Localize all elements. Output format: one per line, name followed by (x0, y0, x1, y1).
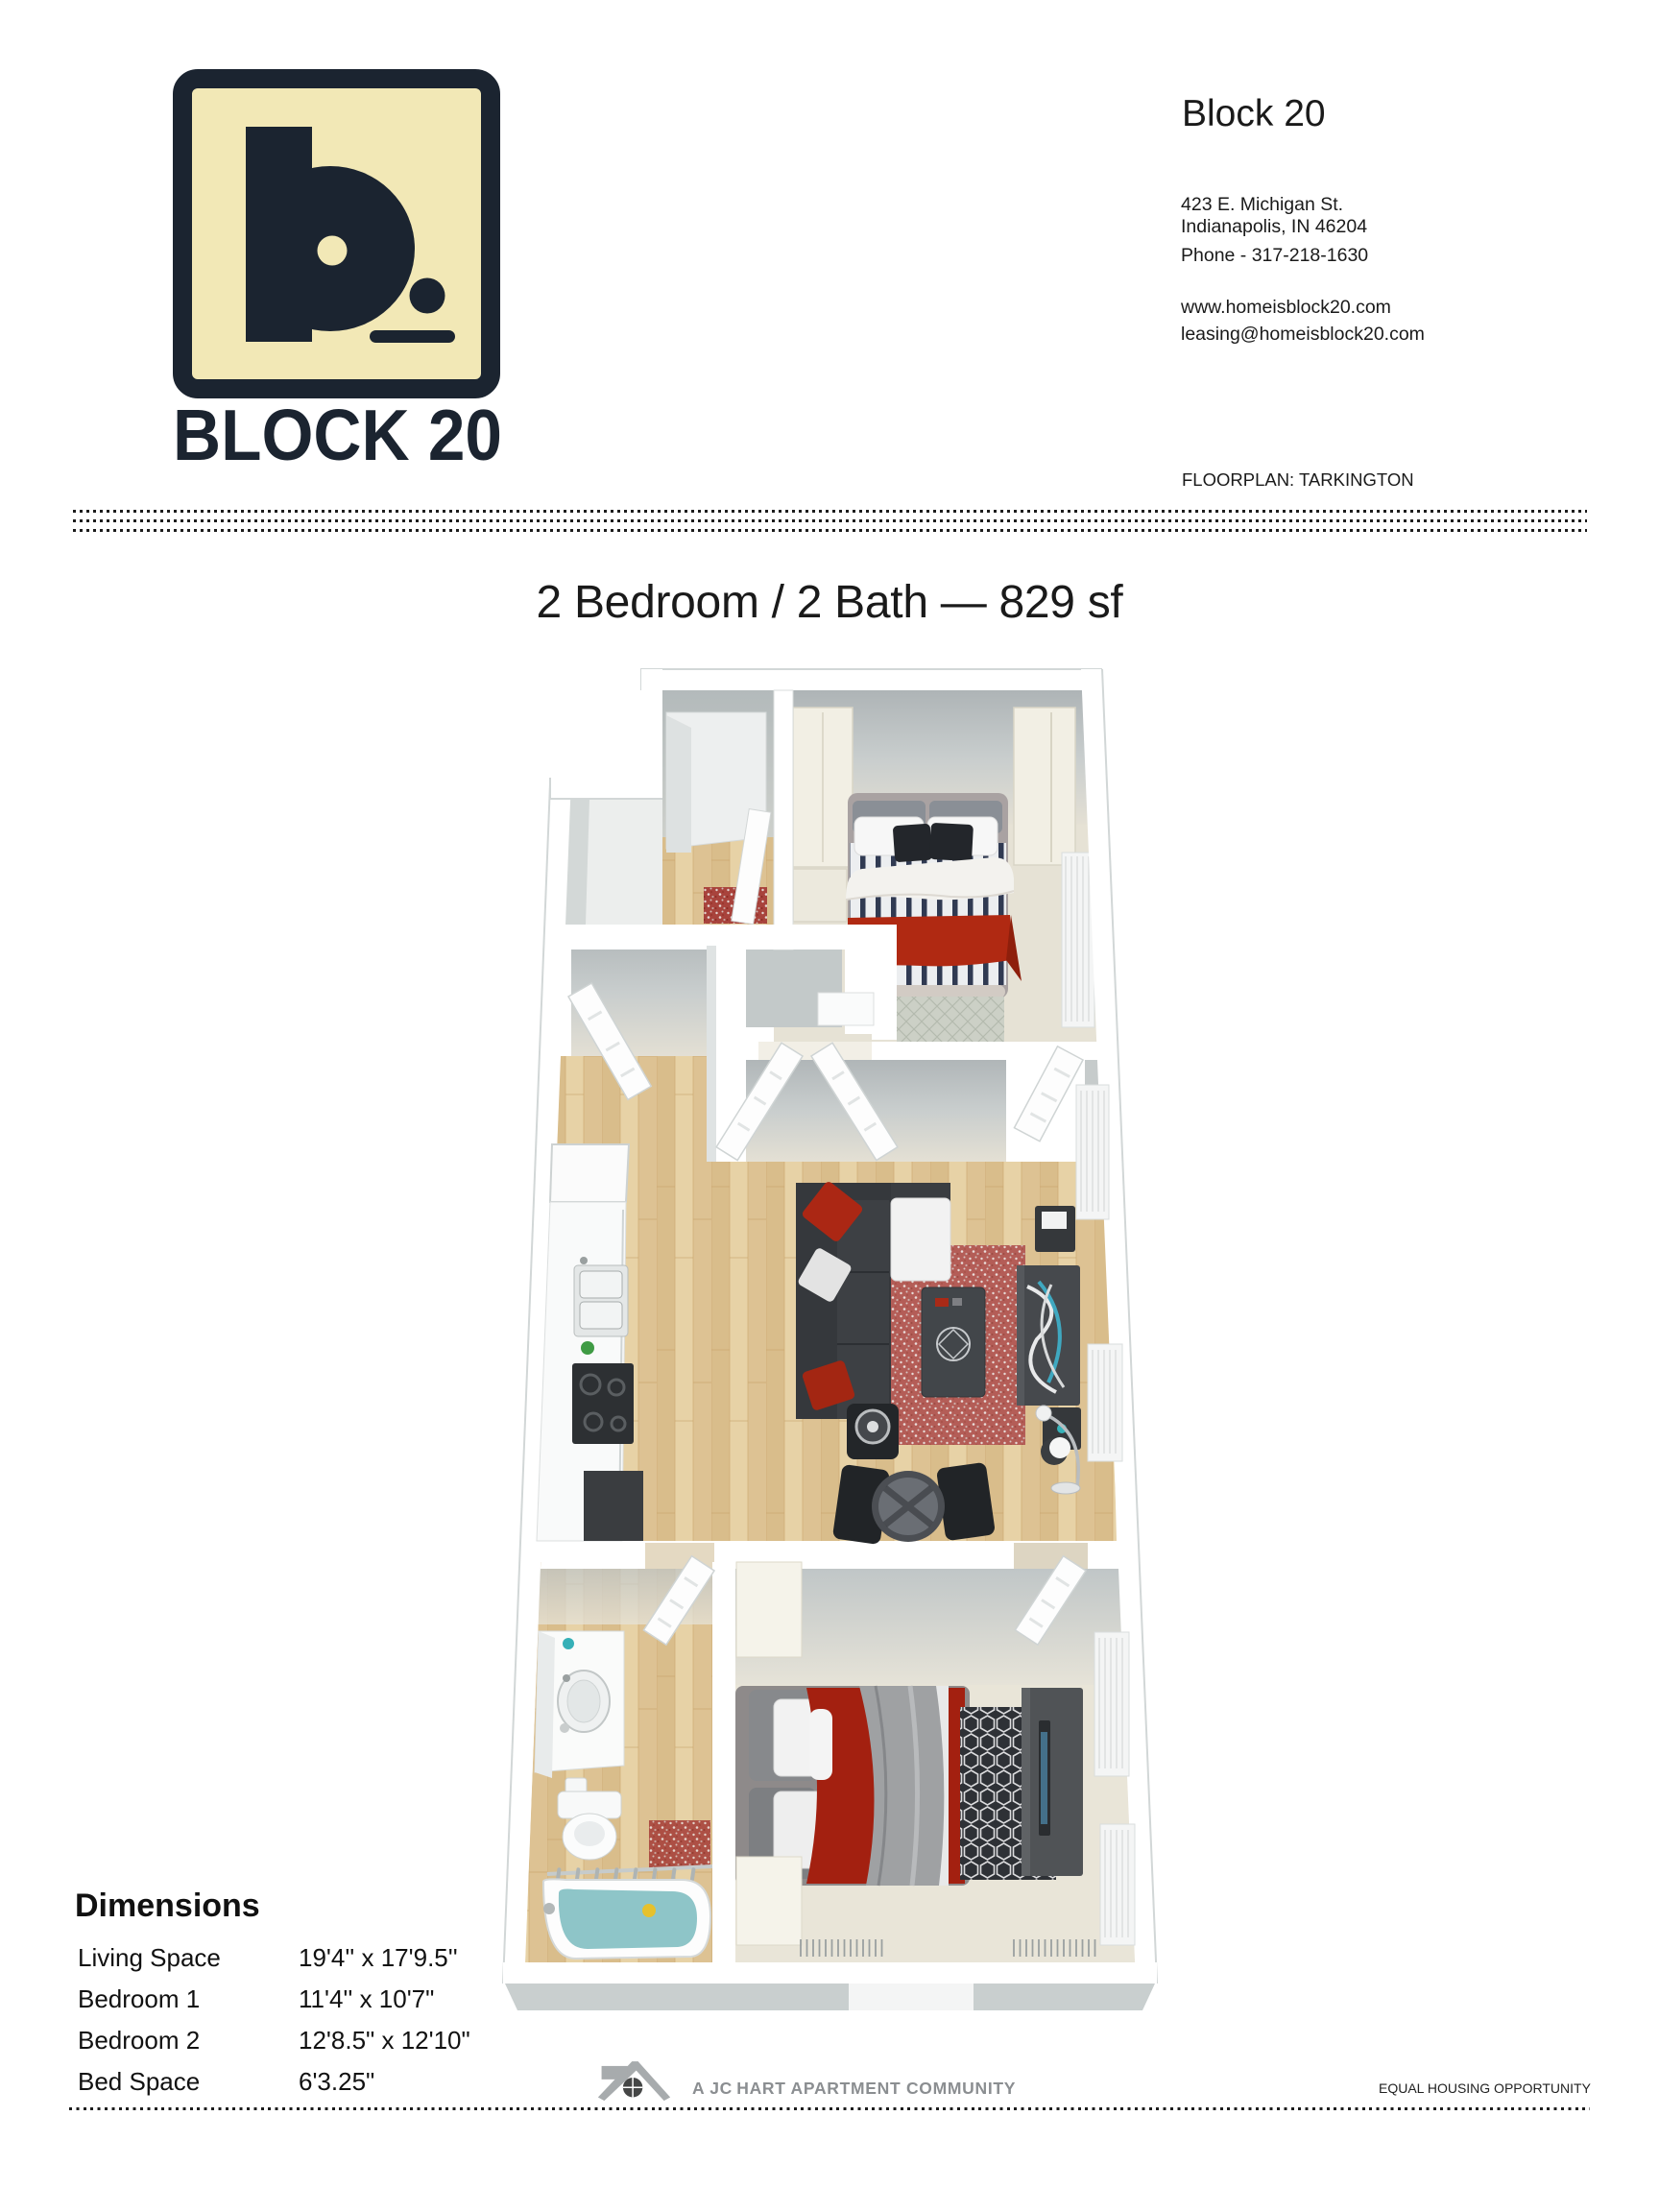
svg-text:BLOCK 20: BLOCK 20 (173, 403, 502, 467)
